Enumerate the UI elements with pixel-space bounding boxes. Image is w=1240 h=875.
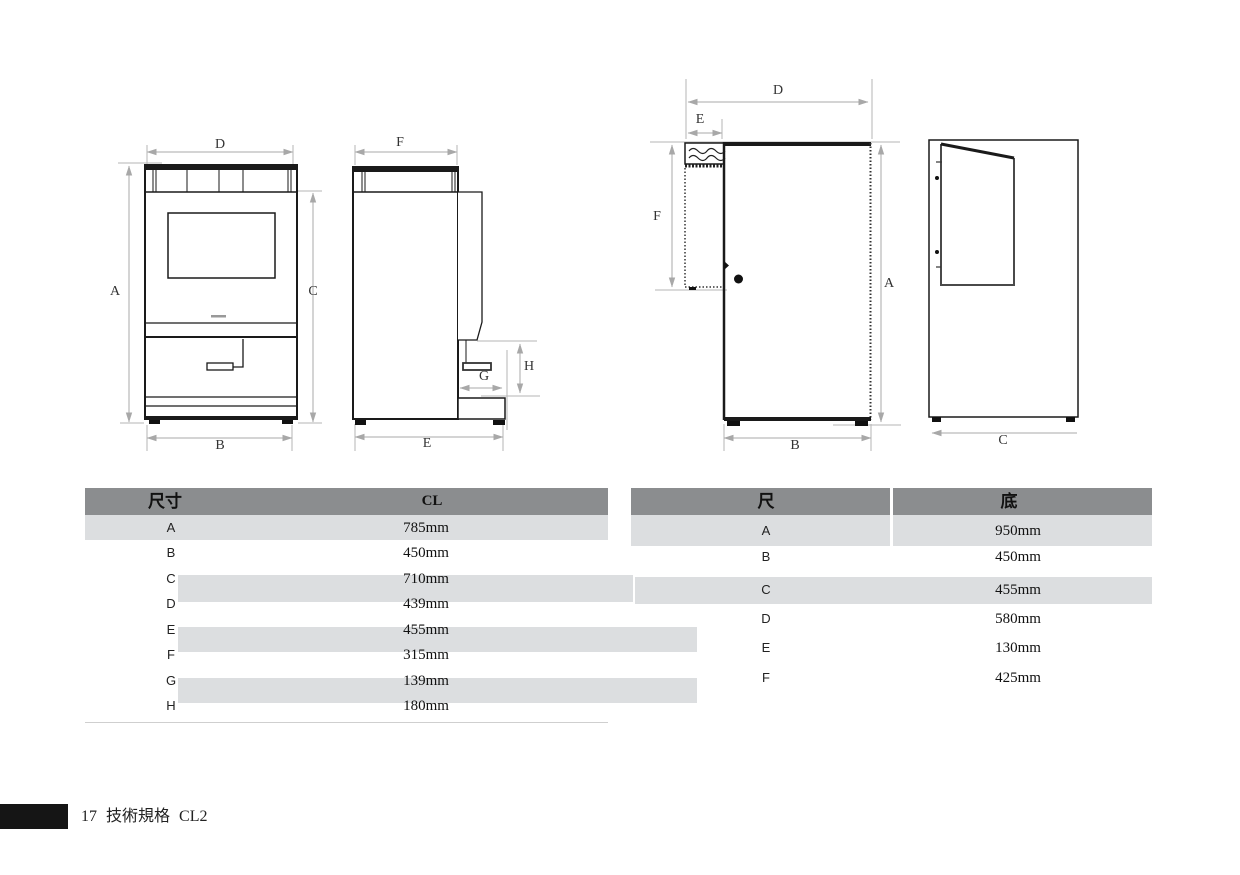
row-value: 425mm [896,666,1140,690]
table-row: D 439mm [85,592,608,616]
row-value: 450mm [305,541,547,565]
dim-label-F: F [396,135,404,151]
row-value: 130mm [896,636,1140,660]
table-row: C 710mm [85,567,608,591]
row-value: 139mm [305,669,547,693]
row-label: E [631,636,901,660]
row-label: G [85,669,257,693]
cabinet-door-outline [724,142,871,426]
row-label: F [85,643,257,667]
rear-duct [458,192,482,340]
brand-mark [211,315,226,318]
table-row: B 450mm [85,541,608,565]
column-header: CL [310,488,554,515]
foot-left [727,421,740,426]
table-row: A 950mm [631,519,1152,543]
foot-right [493,420,505,425]
front-view-svg [110,138,330,458]
foot-right [282,420,293,424]
table-row: E 130mm [631,636,1152,660]
row-label: D [631,607,901,631]
dim-label-A: A [884,276,894,292]
door-knob [734,275,743,284]
foot-right [1066,417,1075,422]
row-label: H [85,694,257,718]
column-header: 尺寸 [85,488,245,515]
footer-black-bar [0,804,68,829]
column-header: 底 [893,488,1125,515]
table-row: C 455mm [631,578,1152,602]
table-row: G 139mm [85,669,608,693]
footer-model: CL2 [179,808,207,825]
table-row: A 785mm [85,516,608,540]
dim-label-A: A [110,284,120,300]
right-dimension-table: 尺 底 A 950mm B 450mm C 455mm D 580mm E 13… [631,488,1152,698]
table-row: D 580mm [631,607,1152,631]
table-header-row: 尺寸 CL [85,488,608,515]
foot-left [355,420,366,425]
dim-label-F: F [653,209,661,225]
dim-label-B: B [215,438,224,454]
page-footer: 17技術規格CL2 [81,806,216,828]
base-step [458,398,505,419]
side-view-drawing: F H G E [335,138,545,458]
foot-left [149,420,160,424]
foot-left [932,417,941,422]
row-value: 950mm [896,519,1140,543]
row-value: 455mm [896,578,1140,602]
column-header: 尺 [631,488,901,515]
dim-label-E: E [696,112,705,128]
table-header-row: 尺 底 [631,488,1152,515]
door-side-view-drawing: C [920,130,1090,455]
door-front-view-svg [648,75,905,460]
table-row: F 315mm [85,643,608,667]
row-value: 785mm [305,516,547,540]
footer-section-title: 技術規格 [106,808,170,825]
row-label: A [85,516,257,540]
dispenser-tower [685,143,725,290]
row-label: C [85,567,257,591]
dimension-arrows [650,79,901,451]
dim-label-H: H [524,359,534,375]
dim-label-C: C [308,284,317,300]
row-label: A [631,519,901,543]
table-row: B 450mm [631,545,1152,569]
screen-panel [168,213,275,278]
row-value: 710mm [305,567,547,591]
row-label: B [631,545,901,569]
row-label: B [85,541,257,565]
table-row: H 180mm [85,694,608,718]
row-label: F [631,666,901,690]
cabinet-side-outline [353,167,505,425]
cabinet-front-outline [145,165,297,424]
row-value: 450mm [896,545,1140,569]
foot-right [855,421,868,426]
row-label: D [85,592,257,616]
manual-page: D A C B [0,0,1240,875]
door-front-view-drawing: D E F A B [648,75,905,460]
row-value: 439mm [305,592,547,616]
door-side-view-svg [920,130,1090,455]
dim-label-C: C [998,433,1007,449]
cabinet-side-outline [929,140,1078,422]
side-view-svg [335,138,545,458]
dim-label-E: E [423,436,432,452]
row-value: 580mm [896,607,1140,631]
table-row: E 455mm [85,618,608,642]
table-row: F 425mm [631,666,1152,690]
drawer-handle [207,363,233,370]
dim-label-D: D [215,137,225,153]
dim-label-G: G [479,369,489,385]
hinge-mark [724,261,729,270]
row-label: C [631,578,901,602]
row-label: E [85,618,257,642]
front-view-drawing: D A C B [110,138,330,458]
page-number: 17 [81,808,97,825]
left-dimension-table: 尺寸 CL A 785mm B 450mm C 710mm D 439mm E … [85,488,608,728]
dim-label-B: B [790,438,799,454]
row-value: 180mm [305,694,547,718]
row-value: 455mm [305,618,547,642]
row-value: 315mm [305,643,547,667]
dim-label-D: D [773,83,783,99]
